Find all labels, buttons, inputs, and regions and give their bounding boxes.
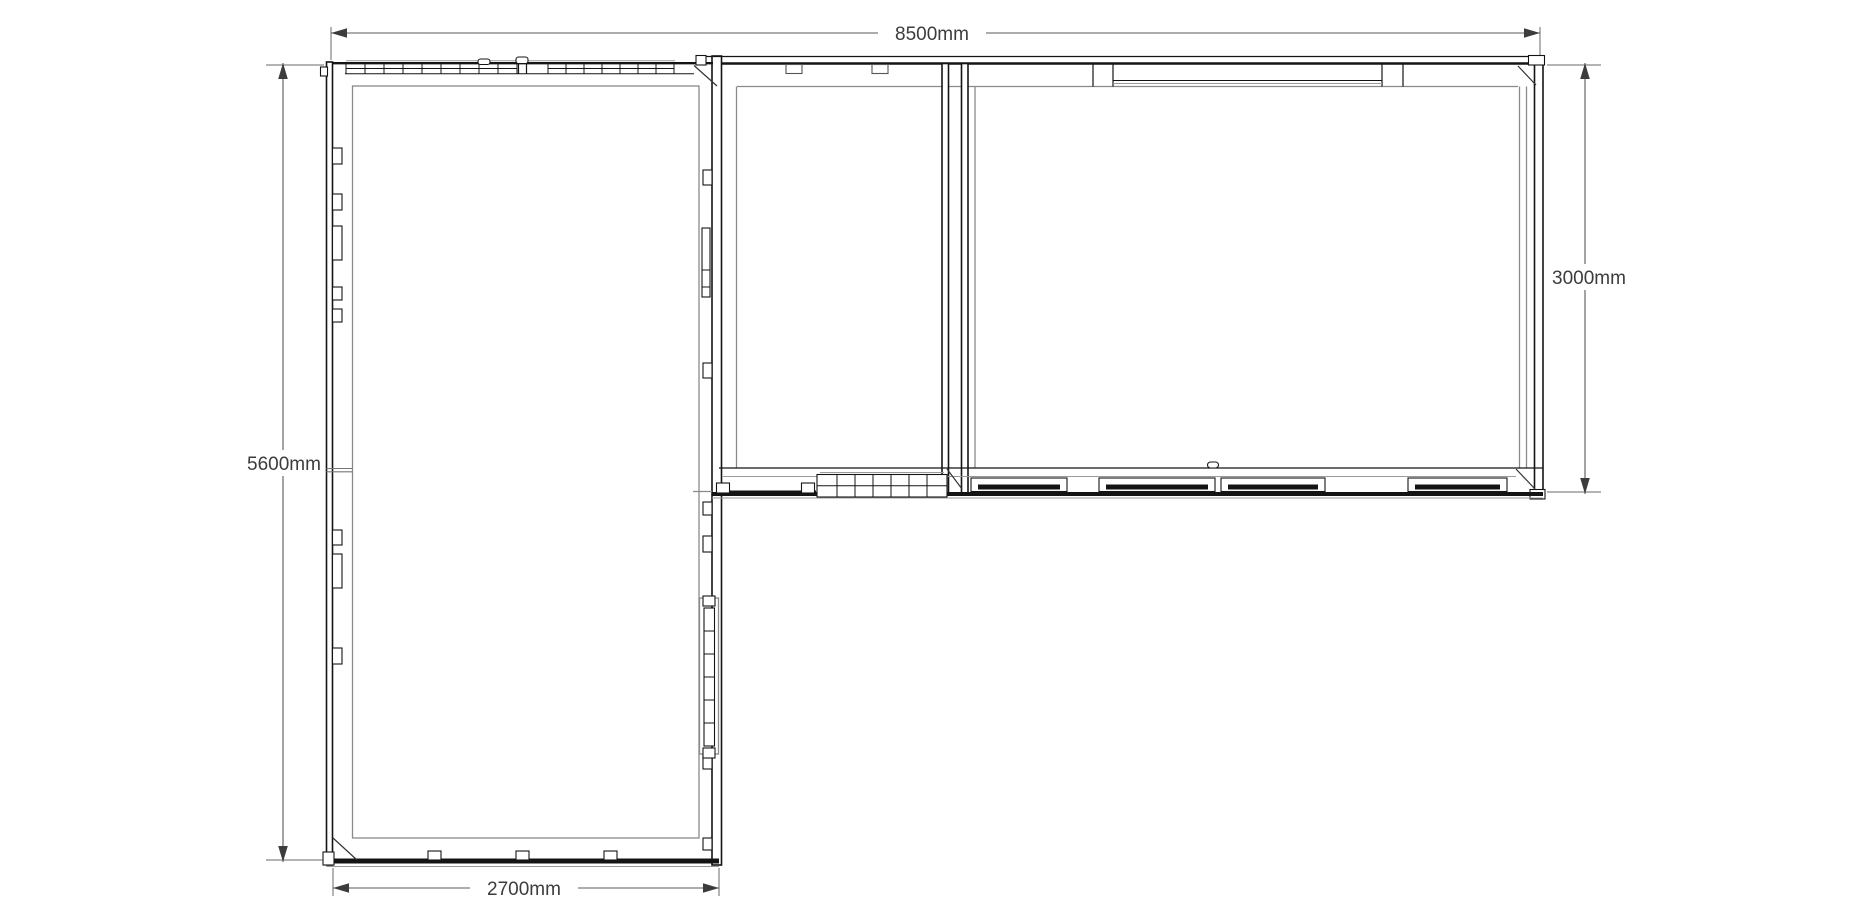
left-wing-interior-face bbox=[353, 86, 700, 838]
footing-tab bbox=[428, 851, 441, 860]
footing-tab bbox=[516, 851, 529, 860]
corner-brace-bottom-right bbox=[1516, 469, 1535, 489]
interior-face-right bbox=[1520, 87, 1527, 469]
window-band-b bbox=[548, 64, 674, 74]
floor-plan-page: 8500mm 3000mm 5600mm 2700mm bbox=[0, 0, 1870, 920]
post-cap bbox=[516, 57, 528, 64]
window-band-a bbox=[346, 64, 517, 74]
window-3 bbox=[1221, 478, 1325, 492]
dimension-label-left: 5600mm bbox=[247, 454, 321, 475]
dimension-label-top: 8500mm bbox=[895, 24, 969, 45]
corner-brace-bottom-left bbox=[333, 838, 357, 860]
window-2 bbox=[1099, 478, 1215, 492]
wall-cap bbox=[321, 67, 328, 76]
dimension-bottom: 2700mm bbox=[333, 868, 719, 901]
dimension-label-bottom: 2700mm bbox=[487, 879, 561, 900]
floor-plan-canvas: 8500mm 3000mm 5600mm 2700mm bbox=[0, 0, 1870, 920]
corner-foot bbox=[323, 852, 334, 865]
window-4 bbox=[1408, 478, 1507, 492]
dimension-left: 5600mm bbox=[246, 63, 324, 862]
top-wall-fittings bbox=[786, 64, 1403, 87]
pivot-knob bbox=[478, 59, 490, 65]
corner-brace-top-right bbox=[1518, 66, 1536, 85]
pivot-knob bbox=[1208, 462, 1219, 468]
right-wall bbox=[1535, 57, 1544, 495]
dimension-label-right: 3000mm bbox=[1552, 268, 1626, 289]
dimension-right: 3000mm bbox=[1547, 63, 1626, 494]
corner-cap bbox=[1529, 56, 1545, 66]
left-wall bbox=[327, 62, 333, 865]
window-1 bbox=[971, 478, 1067, 492]
interior-wall bbox=[942, 64, 968, 496]
sliding-door bbox=[817, 473, 947, 498]
footing-tab bbox=[604, 851, 617, 860]
dimension-top: 8500mm bbox=[331, 20, 1540, 60]
window-post bbox=[519, 63, 527, 74]
junction-cap bbox=[696, 56, 706, 66]
entry-threshold bbox=[717, 483, 817, 493]
left-wing bbox=[321, 56, 722, 867]
right-wing bbox=[693, 56, 1545, 500]
